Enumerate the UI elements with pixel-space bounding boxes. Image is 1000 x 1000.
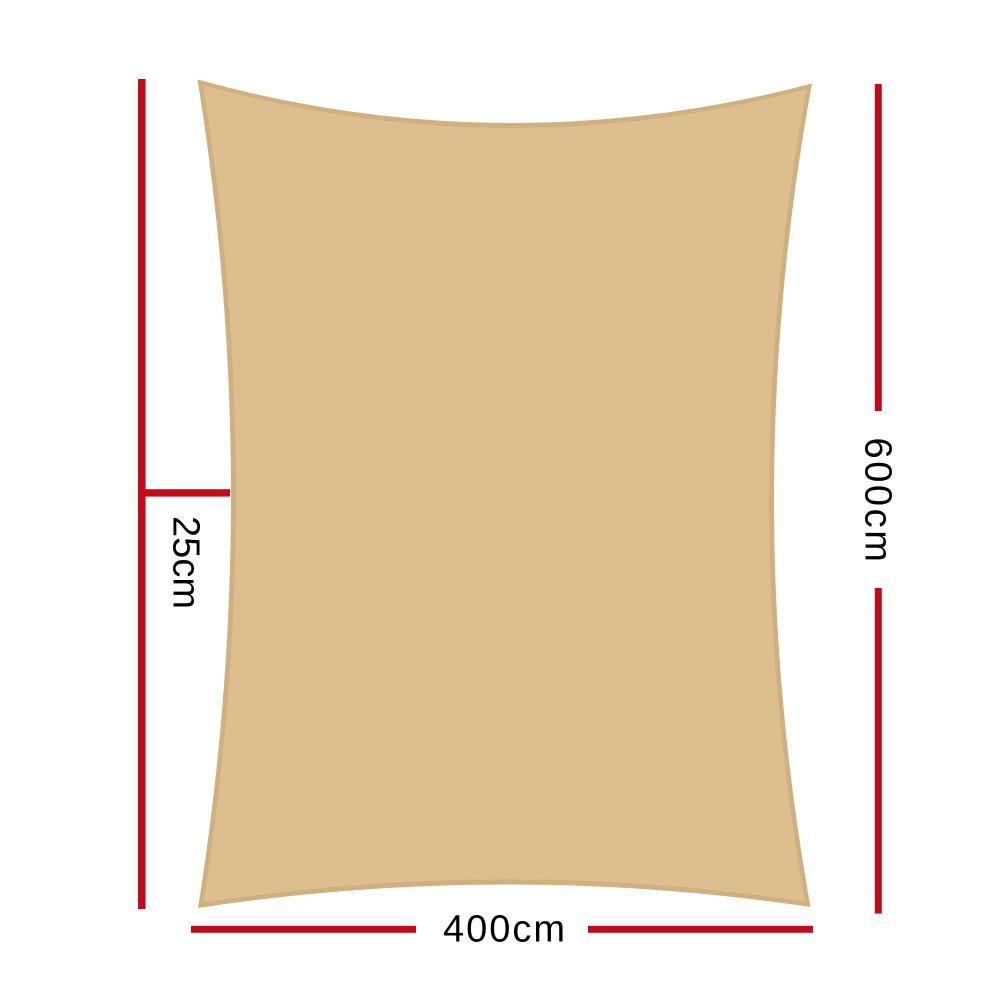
svg-text:25cm: 25cm [165,516,207,609]
svg-text:600cm: 600cm [856,437,898,564]
svg-text:400cm: 400cm [443,909,567,951]
